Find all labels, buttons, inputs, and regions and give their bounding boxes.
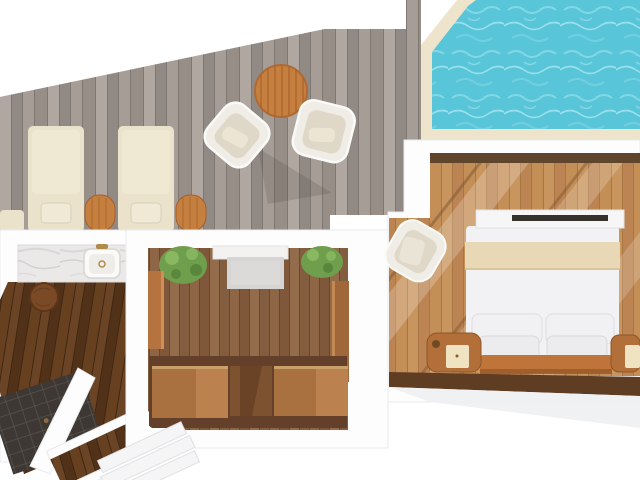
lounger-backrest — [32, 130, 80, 194]
side-table — [85, 195, 115, 231]
floor-plan — [0, 0, 640, 480]
blanket-band — [465, 242, 620, 270]
floor-plan-canvas — [0, 0, 640, 480]
floor-edging — [430, 153, 640, 163]
sun-lounger — [28, 126, 84, 232]
storage-bench — [274, 366, 348, 416]
outdoor-armchair — [290, 97, 358, 165]
sideboard-edge — [161, 271, 164, 349]
nightstand-drawer — [625, 345, 640, 368]
sun-lounger — [118, 126, 174, 232]
pool — [421, 0, 640, 141]
headboard-slot — [512, 215, 608, 221]
planter — [301, 246, 343, 278]
pool-water-texture — [432, 0, 640, 129]
table-lamp — [432, 340, 440, 348]
storage-bench — [152, 366, 228, 418]
planter — [159, 246, 207, 284]
sink-basin — [89, 254, 115, 274]
lounger-pillow — [41, 203, 71, 223]
foot-bench-shadow — [480, 369, 612, 374]
stool — [30, 283, 58, 311]
side-table — [176, 195, 206, 231]
blanket-fold — [465, 268, 620, 270]
bench-center-back — [230, 366, 272, 416]
deck-seat-partial — [0, 210, 24, 232]
nightstand — [611, 335, 640, 372]
drawer-knob — [456, 355, 459, 358]
faucet — [96, 244, 108, 249]
rug-inner — [231, 261, 280, 285]
living-room — [126, 230, 388, 448]
marble-vanity — [18, 244, 126, 282]
nightstand — [427, 333, 481, 372]
armchair-pillow — [309, 127, 335, 142]
lounger-pillow — [131, 203, 161, 223]
lounger-backrest — [122, 130, 170, 194]
double-bed — [465, 210, 624, 374]
